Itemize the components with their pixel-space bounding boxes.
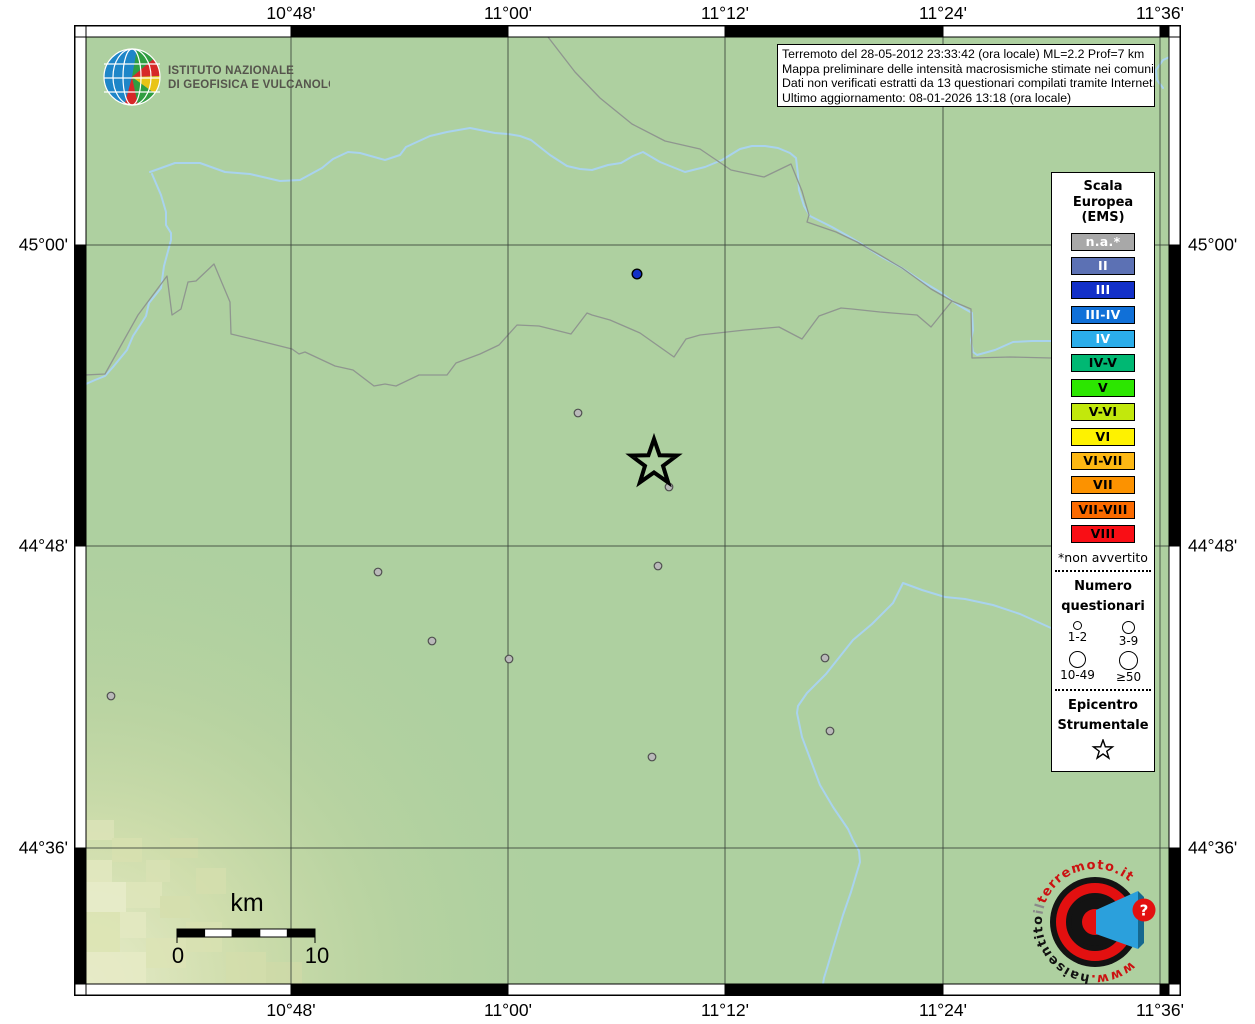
- questionnaire-size-item: 10-49: [1052, 648, 1103, 684]
- axis-label: 10°48': [266, 1000, 315, 1021]
- questionnaire-size-key: 1-23-910-49≥50: [1052, 618, 1154, 684]
- info-line-event: Terremoto del 28-05-2012 23:33:42 (ora l…: [782, 47, 1150, 62]
- questionnaire-point: [374, 568, 382, 576]
- axis-left: 45°00'44°48'44°36': [0, 0, 68, 1024]
- axis-label: 10°48': [266, 3, 315, 24]
- map-page: 10°48'11°00'11°12'11°24'11°36' 10°48'11°…: [0, 0, 1255, 1024]
- questionnaire-point: [821, 654, 829, 662]
- axis-label: 45°00': [19, 235, 68, 256]
- size-circle-label: 10-49: [1052, 668, 1103, 682]
- questionnaire-point: [648, 753, 656, 761]
- scalebar-unit: km: [230, 889, 263, 918]
- axis-label: 11°12': [701, 3, 749, 24]
- earthquake-info-box: Terremoto del 28-05-2012 23:33:42 (ora l…: [777, 44, 1155, 107]
- questionnaire-point: [826, 727, 834, 735]
- questionnaire-point: [654, 562, 662, 570]
- questionnaire-point: [505, 655, 513, 663]
- ingv-logo: ISTITUTO NAZIONALE DI GEOFISICA E VULCAN…: [100, 46, 330, 110]
- questionnaire-point: [107, 692, 115, 700]
- terrain-shading: [86, 520, 566, 984]
- axis-top: 10°48'11°00'11°12'11°24'11°36': [0, 3, 1255, 25]
- info-line-updated: Ultimo aggiornamento: 08-01-2026 13:18 (…: [782, 91, 1150, 106]
- axis-label: 11°36': [1136, 3, 1184, 24]
- ems-swatch-V-VI: V-VI: [1071, 403, 1135, 421]
- legend-title-line: Scala: [1052, 179, 1154, 195]
- size-circle-icon: [1069, 651, 1086, 668]
- axis-label: 11°24': [919, 1000, 967, 1021]
- ems-swatch-III: III: [1071, 281, 1135, 299]
- legend-footnote: *non avvertito: [1052, 550, 1154, 565]
- intensity-point-III: [632, 269, 642, 279]
- axis-label: 44°48': [1188, 536, 1237, 557]
- ems-swatch-III-IV: III-IV: [1071, 306, 1135, 324]
- size-circle-icon: [1119, 651, 1138, 670]
- size-circle-label: 3-9: [1103, 634, 1154, 648]
- ingv-name-line2: DI GEOFISICA E VULCANOLOGIA: [168, 79, 330, 91]
- questionnaire-point: [574, 409, 582, 417]
- questionnaire-size-item: 1-2: [1052, 618, 1103, 648]
- question-mark: ?: [1140, 902, 1149, 920]
- scalebar-end: 10: [305, 943, 329, 969]
- ems-swatch-IV-V: IV-V: [1071, 354, 1135, 372]
- axis-label: 11°36': [1136, 1000, 1184, 1021]
- epicenter-star-icon: [1091, 739, 1115, 761]
- ems-swatch-VII: VII: [1071, 476, 1135, 494]
- questionnaire-size-item: ≥50: [1103, 648, 1154, 684]
- size-circle-icon: [1073, 621, 1082, 630]
- size-circle-icon: [1122, 621, 1135, 634]
- epicenter-title-line: Epicentro: [1052, 696, 1154, 716]
- size-circle-label: 1-2: [1052, 630, 1103, 644]
- ingv-globe-icon: [104, 49, 160, 105]
- legend-panel: Scala Europea (EMS) n.a.*IIIIIIII-IVIVIV…: [1051, 172, 1155, 772]
- axis-label: 44°36': [19, 838, 68, 859]
- ems-swatch-VI: VI: [1071, 428, 1135, 446]
- questionnaire-size-item: 3-9: [1103, 618, 1154, 648]
- epicenter-title-line: Strumentale: [1052, 716, 1154, 736]
- ems-swatch-n.a.*: n.a.*: [1071, 233, 1135, 251]
- legend-title-line: (EMS): [1052, 210, 1154, 226]
- legend-divider: [1055, 689, 1151, 691]
- axis-bottom: 10°48'11°00'11°12'11°24'11°36': [0, 1000, 1255, 1022]
- axis-right: 45°00'44°48'44°36': [1188, 0, 1255, 1024]
- scalebar-start: 0: [172, 943, 184, 969]
- axis-label: 44°36': [1188, 838, 1237, 859]
- questionnaire-count-title-line: Numero: [1052, 577, 1154, 597]
- axis-label: 11°12': [701, 1000, 749, 1021]
- axis-label: 11°00': [484, 1000, 532, 1021]
- info-line-data-source: Dati non verificati estratti da 13 quest…: [782, 76, 1150, 91]
- ems-scale-swatches: n.a.*IIIIIIII-IVIVIV-VVV-VIVIVI-VIIVIIVI…: [1052, 233, 1154, 544]
- legend-title: Scala Europea (EMS): [1052, 179, 1154, 226]
- axis-label: 11°00': [484, 3, 532, 24]
- ems-swatch-IV: IV: [1071, 330, 1135, 348]
- ems-swatch-V: V: [1071, 379, 1135, 397]
- info-line-map-type: Mappa preliminare delle intensità macros…: [782, 62, 1150, 77]
- ems-swatch-VII-VIII: VII-VIII: [1071, 501, 1135, 519]
- ingv-name-line1: ISTITUTO NAZIONALE: [168, 65, 294, 77]
- ems-swatch-II: II: [1071, 257, 1135, 275]
- legend-divider: [1055, 570, 1151, 572]
- legend-title-line: Europea: [1052, 195, 1154, 211]
- ems-swatch-VI-VII: VI-VII: [1071, 452, 1135, 470]
- axis-label: 45°00': [1188, 235, 1237, 256]
- axis-label: 44°48': [19, 536, 68, 557]
- axis-label: 11°24': [919, 3, 967, 24]
- haisentitoilterremoto-logo: ? www.haisentitoilterremoto.it: [1028, 857, 1162, 991]
- size-circle-label: ≥50: [1103, 670, 1154, 684]
- questionnaire-point: [428, 637, 436, 645]
- ems-swatch-VIII: VIII: [1071, 525, 1135, 543]
- questionnaire-count-title-line: questionari: [1052, 597, 1154, 617]
